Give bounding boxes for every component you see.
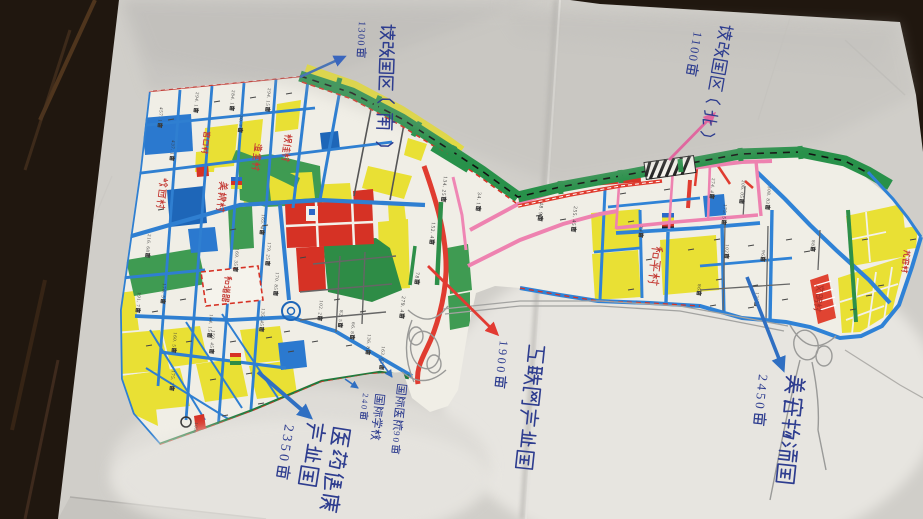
svg-text:0: 0 xyxy=(355,34,366,40)
svg-text:1: 1 xyxy=(356,21,367,27)
svg-text:0: 0 xyxy=(355,40,366,46)
svg-text:3: 3 xyxy=(355,27,366,33)
